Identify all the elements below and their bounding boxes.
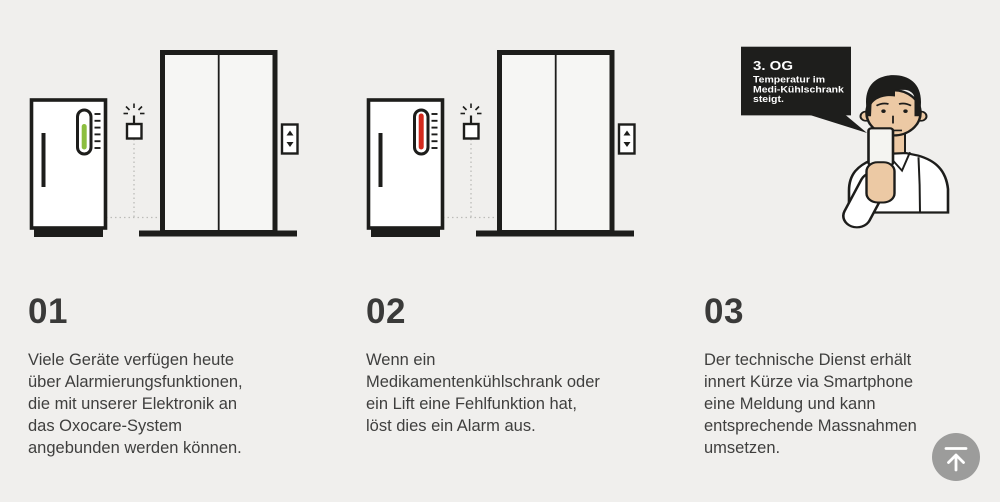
step-01-text: Viele Geräte verfügen heute über Alarmie… xyxy=(28,349,346,459)
fridge-handle xyxy=(42,133,46,187)
connection-dotted-lines xyxy=(106,139,161,218)
step-03-number: 03 xyxy=(704,294,1000,329)
hand xyxy=(867,162,895,202)
person xyxy=(849,75,948,216)
scene-01-illustration xyxy=(20,40,300,240)
step-02-text: Wenn ein Medikamentenkühlschrank oder ei… xyxy=(366,349,684,437)
infographic-canvas: 3. OG Temperatur im Medi-Kühlschrank ste… xyxy=(0,0,1000,502)
scroll-to-top-icon xyxy=(932,433,980,481)
elevator xyxy=(476,53,635,234)
signal-rays-icon xyxy=(461,104,482,114)
elevator-call-button xyxy=(619,125,635,154)
step-01-column: 01 Viele Geräte verfügen heute über Alar… xyxy=(28,294,346,459)
scroll-to-top-button[interactable] xyxy=(932,433,980,481)
bubble-message-line-3: steigt. xyxy=(753,95,784,105)
elevator xyxy=(139,53,298,234)
step-01-number: 01 xyxy=(28,294,346,329)
step-02-column: 02 Wenn ein Medikamentenkühlschrank oder… xyxy=(366,294,684,437)
scene-step-01 xyxy=(20,40,300,240)
scene-step-03: 3. OG Temperatur im Medi-Kühlschrank ste… xyxy=(700,40,980,246)
fridge-handle xyxy=(379,133,383,187)
bubble-message-line-1: Temperatur im xyxy=(753,75,825,85)
speech-bubble-tail xyxy=(806,114,867,133)
eye-right xyxy=(903,109,907,113)
scene-step-02 xyxy=(357,40,637,240)
elevator-call-button xyxy=(282,125,298,154)
fridge-base xyxy=(371,228,440,237)
connection-dotted-lines xyxy=(443,139,498,218)
wireless-sensor-icon xyxy=(461,104,482,139)
fridge xyxy=(32,100,106,237)
scene-02-illustration xyxy=(357,40,637,240)
smartphone xyxy=(869,128,894,165)
speech-bubble: 3. OG Temperatur im Medi-Kühlschrank ste… xyxy=(741,47,867,133)
scene-03-illustration: 3. OG Temperatur im Medi-Kühlschrank ste… xyxy=(700,40,980,246)
wireless-sensor-icon xyxy=(124,104,145,139)
signal-rays-icon xyxy=(124,104,145,114)
bubble-floor-label: 3. OG xyxy=(753,58,793,73)
bubble-message-line-2: Medi-Kühlschrank xyxy=(753,85,845,95)
fridge-base xyxy=(34,228,103,237)
eye-left xyxy=(881,109,885,113)
step-02-number: 02 xyxy=(366,294,684,329)
fridge xyxy=(369,100,443,237)
